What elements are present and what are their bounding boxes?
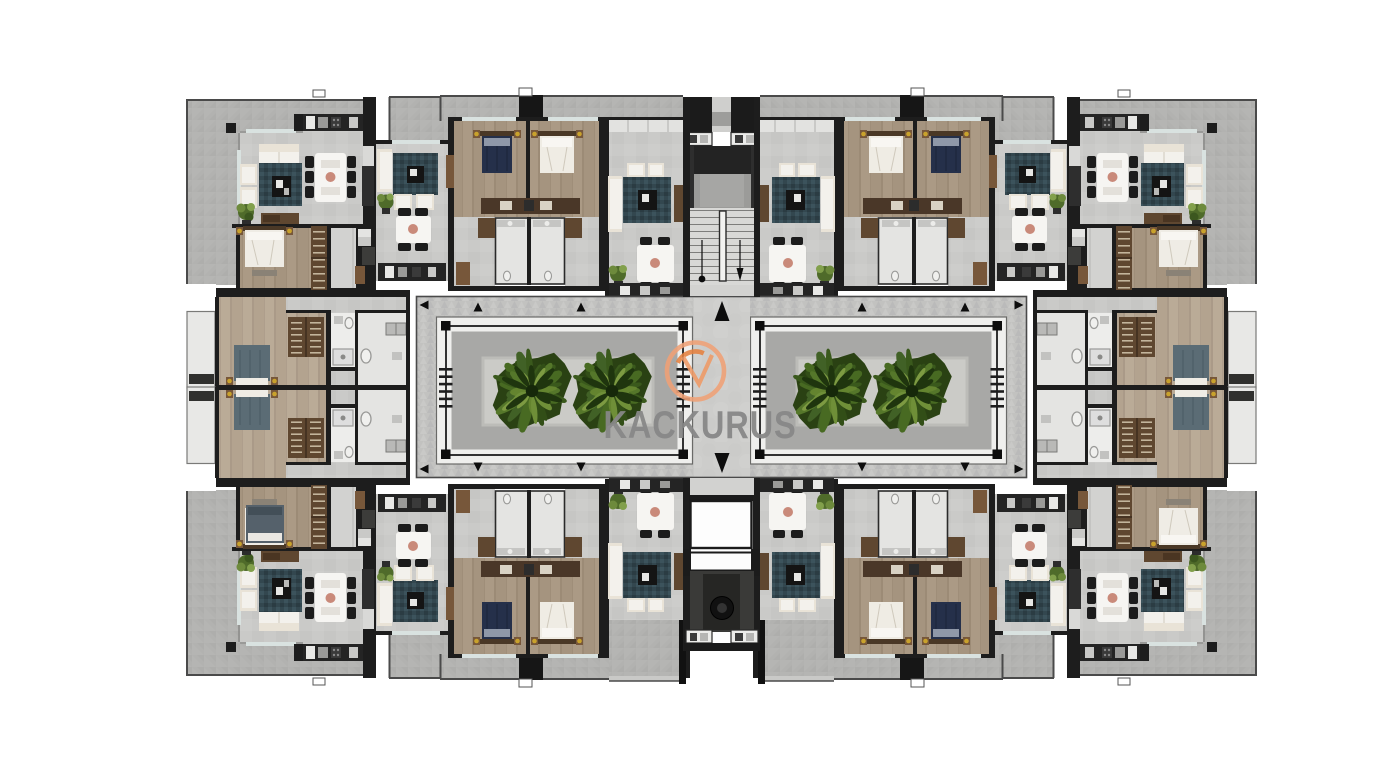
svg-text:KACKURUS: KACKURUS bbox=[604, 404, 797, 447]
